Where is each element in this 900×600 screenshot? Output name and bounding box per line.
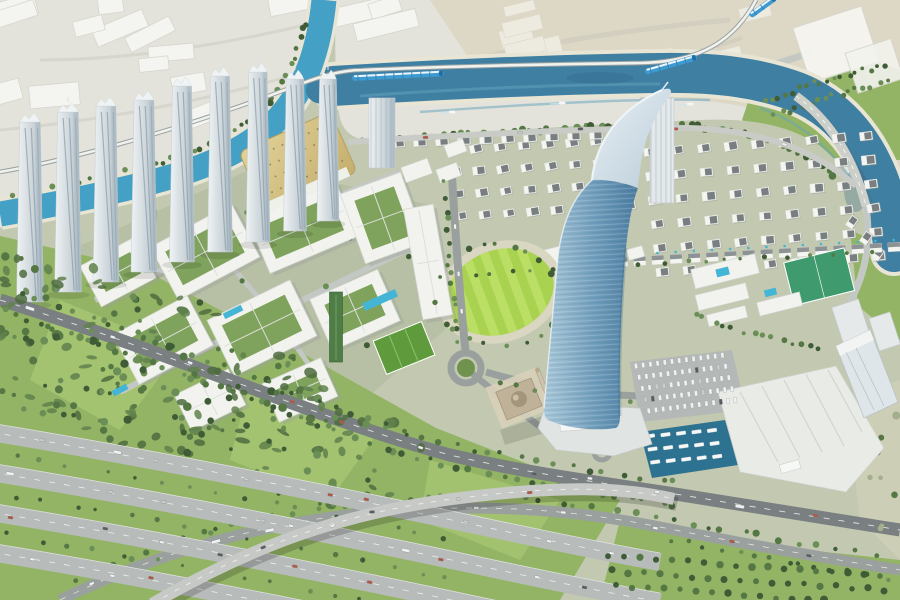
- parked-car: [661, 406, 665, 412]
- tree: [406, 254, 411, 259]
- tree: [767, 555, 772, 560]
- tree: [797, 84, 802, 89]
- townhouse-roof: [652, 255, 664, 260]
- tree: [532, 388, 537, 393]
- tree: [622, 473, 628, 479]
- tree: [197, 147, 203, 153]
- tree: [432, 300, 437, 305]
- tree: [613, 582, 619, 588]
- tree: [720, 324, 725, 329]
- tree: [572, 463, 576, 467]
- villa: [780, 161, 796, 173]
- tree: [892, 412, 900, 420]
- tree: [324, 419, 328, 423]
- parked-car: [676, 404, 680, 410]
- tree: [182, 373, 186, 377]
- tree: [689, 575, 695, 581]
- tree: [42, 294, 49, 301]
- tree: [891, 492, 898, 499]
- villa-roof: [658, 244, 666, 252]
- parked-car: [730, 386, 734, 392]
- tree: [63, 464, 67, 468]
- tree: [875, 64, 879, 68]
- tree: [129, 556, 135, 562]
- tree: [663, 261, 668, 266]
- tree: [76, 506, 80, 510]
- villa: [704, 215, 719, 226]
- villa: [676, 193, 690, 203]
- car: [578, 128, 583, 131]
- car: [423, 136, 428, 139]
- parked-car: [662, 383, 666, 389]
- tree: [792, 105, 797, 110]
- tree: [790, 91, 796, 97]
- tree: [864, 584, 871, 591]
- tree: [514, 476, 520, 482]
- tree: [252, 375, 257, 380]
- tree: [852, 86, 856, 90]
- tree: [808, 253, 812, 257]
- tree: [172, 414, 178, 420]
- tree: [22, 328, 30, 336]
- tree: [637, 476, 642, 481]
- tree: [24, 318, 29, 323]
- parked-car: [688, 368, 692, 374]
- tree: [207, 417, 214, 424]
- tree: [70, 308, 75, 313]
- car: [587, 477, 592, 480]
- villa: [754, 163, 769, 174]
- parked-car: [733, 397, 737, 403]
- tree: [833, 547, 837, 551]
- villa: [761, 235, 776, 246]
- tree: [467, 336, 472, 341]
- tree: [73, 578, 78, 583]
- tree: [268, 579, 272, 583]
- villa-roof: [737, 214, 745, 221]
- tree: [867, 85, 872, 90]
- tree: [636, 262, 641, 267]
- tree: [886, 79, 890, 83]
- tree: [512, 245, 518, 251]
- tree: [716, 561, 723, 568]
- tree: [788, 561, 793, 566]
- tree: [36, 457, 41, 462]
- tree: [453, 465, 460, 472]
- tree: [781, 108, 786, 113]
- tree: [419, 435, 425, 441]
- tree: [14, 496, 19, 501]
- tree: [605, 553, 611, 559]
- tree: [453, 319, 458, 324]
- tree: [308, 589, 313, 594]
- tree: [213, 527, 217, 531]
- tree: [783, 93, 788, 98]
- tree: [365, 415, 371, 421]
- parked-car: [717, 365, 721, 371]
- parked-car: [680, 392, 684, 398]
- tree: [332, 415, 338, 421]
- tree: [817, 82, 821, 86]
- parked-car: [654, 407, 658, 413]
- parked-car: [683, 404, 687, 410]
- tree: [318, 399, 322, 403]
- tree: [621, 554, 627, 560]
- villa-roof: [661, 268, 669, 276]
- parked-car: [658, 395, 662, 401]
- hedge: [47, 408, 57, 413]
- tree: [472, 449, 477, 454]
- tree: [487, 272, 491, 276]
- tree: [197, 299, 204, 306]
- tree: [205, 360, 210, 365]
- tree: [853, 548, 858, 553]
- tree: [448, 281, 453, 286]
- townhouse-roof: [870, 243, 882, 248]
- tree: [511, 269, 516, 274]
- tree: [218, 383, 224, 389]
- tree: [152, 340, 158, 346]
- villa-roof: [477, 166, 485, 174]
- tree: [799, 341, 805, 347]
- tree: [314, 423, 320, 429]
- tree: [653, 557, 659, 563]
- tree: [699, 314, 704, 319]
- tree: [815, 97, 820, 102]
- tree: [877, 573, 883, 579]
- tree: [442, 575, 446, 579]
- tree: [588, 503, 594, 509]
- tree: [742, 331, 746, 335]
- parked-car: [720, 376, 724, 382]
- villa-roof: [769, 260, 777, 267]
- tree: [673, 573, 679, 579]
- parked-car: [723, 387, 727, 393]
- tree: [293, 57, 297, 61]
- parked-car: [670, 359, 674, 365]
- tree: [203, 381, 209, 387]
- parked-car: [641, 386, 645, 392]
- tree: [304, 467, 311, 474]
- villa-roof: [764, 212, 771, 219]
- tree: [813, 541, 820, 548]
- villa-roof: [680, 194, 687, 201]
- tree: [222, 362, 227, 367]
- tree: [728, 325, 733, 330]
- villa: [840, 205, 855, 216]
- parked-car: [677, 358, 681, 364]
- tree: [393, 565, 397, 569]
- villa-roof: [739, 238, 747, 246]
- parked-car: [659, 372, 663, 378]
- tree: [113, 367, 121, 375]
- tree: [313, 451, 321, 459]
- tree: [159, 365, 164, 370]
- tree: [216, 347, 221, 352]
- villa: [569, 160, 582, 170]
- villa-roof: [793, 234, 801, 241]
- tree: [245, 537, 248, 540]
- tree: [672, 517, 677, 522]
- parked-car: [645, 374, 649, 380]
- villa-roof: [685, 242, 693, 250]
- car: [561, 511, 566, 514]
- tree: [266, 439, 271, 444]
- tree: [264, 400, 271, 407]
- parked-car: [647, 408, 651, 414]
- hedge: [235, 429, 246, 434]
- parked-car: [666, 371, 670, 377]
- tree: [364, 342, 370, 348]
- tree: [161, 385, 167, 391]
- tree: [709, 589, 715, 595]
- boat-wake: [550, 104, 560, 105]
- tree: [278, 403, 287, 412]
- parked-car: [721, 352, 725, 358]
- tree: [384, 421, 389, 426]
- parked-car: [684, 380, 688, 386]
- tree: [694, 312, 699, 317]
- tree: [290, 511, 296, 517]
- tree: [16, 453, 20, 457]
- tree: [143, 550, 149, 556]
- tree: [201, 529, 207, 535]
- townhouse-roof: [797, 247, 809, 252]
- villa-roof: [840, 158, 848, 166]
- tree: [70, 402, 77, 409]
- parked-car: [681, 369, 685, 375]
- roundabout-island: [457, 359, 475, 377]
- tree: [757, 593, 763, 599]
- tree: [188, 485, 192, 489]
- tree: [124, 416, 132, 424]
- tree: [415, 457, 419, 461]
- tree: [685, 557, 691, 563]
- tree: [275, 363, 282, 370]
- parked-car: [698, 378, 702, 384]
- tree: [628, 399, 633, 404]
- tree: [737, 578, 742, 583]
- tree: [796, 561, 800, 565]
- tree: [294, 46, 299, 51]
- villa-roof: [837, 133, 845, 141]
- tree: [654, 515, 659, 520]
- tree: [656, 570, 663, 577]
- tree: [445, 263, 449, 267]
- parked-car: [726, 398, 730, 404]
- tree: [99, 389, 104, 394]
- tree: [484, 450, 490, 456]
- tree: [89, 328, 94, 333]
- tree: [100, 427, 107, 434]
- tree: [523, 249, 527, 253]
- villa-roof: [817, 208, 825, 216]
- tree: [333, 552, 338, 557]
- villa: [707, 239, 722, 250]
- tree: [781, 566, 788, 573]
- tree: [385, 447, 392, 454]
- tree: [693, 588, 700, 595]
- tree: [752, 553, 757, 558]
- tree: [352, 434, 359, 441]
- parked-car: [697, 402, 701, 408]
- tree: [443, 196, 448, 201]
- villa-roof: [576, 183, 584, 190]
- parked-car: [656, 361, 660, 367]
- tree: [20, 291, 25, 296]
- villa-roof: [845, 206, 853, 214]
- tree: [267, 379, 271, 383]
- tree: [714, 320, 719, 325]
- tree: [498, 380, 503, 385]
- tree: [782, 337, 788, 343]
- tree: [882, 63, 887, 68]
- tree: [645, 585, 651, 591]
- tree: [182, 524, 187, 529]
- parked-car: [655, 384, 659, 390]
- tree: [587, 468, 594, 475]
- tree: [561, 502, 567, 508]
- tree: [539, 334, 543, 338]
- tree: [701, 559, 708, 566]
- tree: [486, 471, 493, 478]
- townhouse-roof: [888, 242, 900, 247]
- tree: [837, 75, 842, 80]
- tree: [367, 441, 372, 446]
- villa: [759, 211, 773, 221]
- tree: [274, 390, 280, 396]
- parked-car: [651, 396, 655, 402]
- tree: [293, 505, 298, 510]
- tree: [770, 98, 775, 103]
- tree: [13, 312, 18, 317]
- tree: [71, 413, 76, 418]
- tree: [760, 332, 765, 337]
- tree: [31, 296, 37, 302]
- tree: [624, 570, 632, 578]
- tree: [454, 302, 458, 306]
- villa-roof: [656, 220, 664, 228]
- tree: [514, 382, 519, 387]
- parked-car: [702, 366, 706, 372]
- tree: [753, 530, 760, 537]
- tree: [285, 363, 289, 367]
- tree: [748, 563, 756, 571]
- tree: [49, 184, 55, 190]
- midrise-windows: [369, 98, 395, 168]
- villa-roof: [847, 230, 854, 237]
- tree: [179, 415, 185, 421]
- parked-car: [713, 353, 717, 359]
- tree: [3, 306, 9, 312]
- villa-roof: [790, 210, 798, 218]
- tree: [249, 397, 253, 401]
- villa-roof: [869, 180, 877, 188]
- parked-car: [673, 393, 677, 399]
- tree: [58, 378, 64, 384]
- tree: [96, 342, 101, 347]
- tree: [720, 549, 724, 553]
- tree: [12, 393, 16, 397]
- tree: [846, 89, 850, 93]
- tree: [208, 530, 213, 535]
- tree: [455, 340, 459, 344]
- tree: [723, 258, 726, 261]
- tree: [38, 498, 42, 502]
- car: [454, 224, 457, 229]
- tree: [1, 252, 9, 260]
- tree: [88, 176, 92, 180]
- parked-car: [685, 357, 689, 363]
- tree: [43, 384, 47, 388]
- villa-roof: [866, 156, 874, 164]
- tree: [135, 306, 141, 312]
- tree: [762, 254, 767, 259]
- tree: [343, 415, 349, 421]
- boat: [559, 102, 566, 105]
- tree: [52, 333, 60, 341]
- tree: [120, 360, 128, 368]
- tree: [700, 545, 704, 549]
- tree: [721, 576, 728, 583]
- tree: [101, 317, 107, 323]
- villa-roof: [507, 209, 514, 216]
- tree: [134, 356, 141, 363]
- tree: [297, 393, 303, 399]
- parked-car: [706, 354, 710, 360]
- boat: [449, 111, 456, 114]
- tree: [536, 257, 542, 263]
- parked-car: [663, 360, 667, 366]
- tree: [614, 507, 621, 514]
- parked-car: [687, 391, 691, 397]
- tree: [326, 423, 332, 429]
- parked-car: [690, 403, 694, 409]
- tree: [347, 411, 354, 418]
- scene-canvas: [0, 0, 900, 600]
- tree: [804, 83, 809, 88]
- tree: [775, 537, 782, 544]
- tree: [738, 257, 741, 260]
- parked-car: [694, 391, 698, 397]
- tree: [230, 389, 236, 395]
- townhouse-roof: [688, 253, 700, 258]
- tree: [360, 557, 365, 562]
- tree: [214, 491, 217, 494]
- tree: [40, 337, 48, 345]
- aerial-masterplan-rendering: [0, 0, 900, 600]
- tree: [466, 246, 472, 252]
- villa: [810, 183, 826, 194]
- villa-roof: [871, 204, 879, 212]
- parked-car: [705, 378, 709, 384]
- tree: [550, 461, 555, 466]
- tree: [629, 585, 635, 591]
- tree: [503, 475, 508, 480]
- villa-roof: [555, 206, 563, 214]
- boat-wake: [440, 113, 450, 114]
- tree: [852, 71, 856, 75]
- tree: [771, 112, 776, 117]
- tree: [831, 253, 835, 257]
- tree: [662, 478, 667, 483]
- tree: [493, 242, 497, 246]
- car: [369, 510, 374, 513]
- villa: [732, 213, 746, 224]
- villa-roof: [729, 141, 738, 150]
- tree: [92, 316, 96, 320]
- tree: [55, 385, 63, 393]
